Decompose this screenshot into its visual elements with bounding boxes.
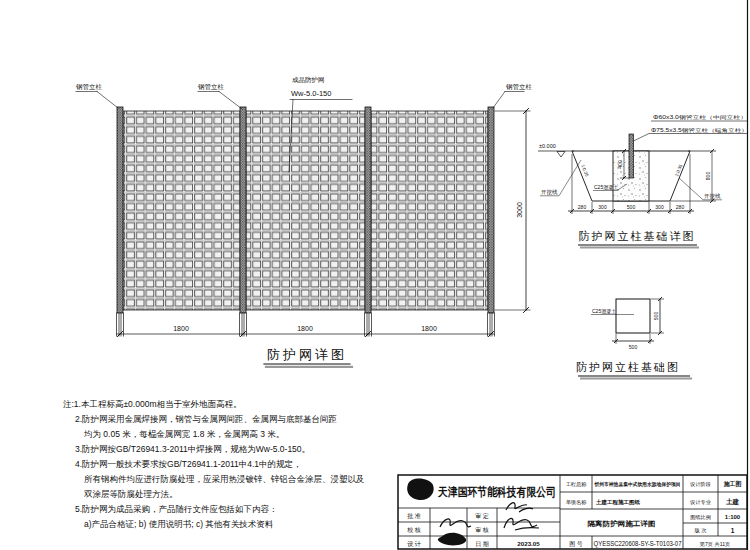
stage-value: 施工图	[723, 480, 742, 488]
note-line: a)产品合格证; b) 使用说明书; c) 其他有关技术资料	[63, 517, 393, 532]
label-review: 审 核	[475, 526, 489, 533]
dim-b2: 300	[598, 204, 607, 210]
foundation-detail-title: 防护网立柱基础详图	[579, 230, 696, 242]
dim-w: 500	[629, 344, 638, 350]
post-label-1: 钢管立柱	[75, 83, 103, 91]
dim-h: 500	[653, 312, 659, 321]
dim-embed: 400	[617, 160, 623, 169]
page-info: 第7页 共11页	[699, 541, 730, 547]
foundation-plan-drawing: C25混凝土 500 500 防护网立柱基础图	[576, 297, 692, 379]
concrete-label: C25混凝土	[594, 184, 618, 191]
label-scale: 图纸比例	[690, 514, 711, 521]
dim-b5: 280	[676, 204, 685, 210]
note-line: 均为 0.05 米，每榀金属网宽 1.8 米，金属网高 3 米。	[63, 427, 393, 442]
label-check: 校 核	[406, 527, 421, 533]
post-label-3: 钢管立柱	[505, 83, 533, 91]
spec-leader	[634, 134, 650, 142]
note-line: 5.防护网为成品采购，产品随行文件应包括如下内容：	[63, 502, 393, 517]
dim-panel-3: 1800	[421, 325, 437, 332]
concrete-label: C25混凝土	[592, 308, 616, 315]
note-line: 双涂层等防腐处理方法。	[63, 487, 393, 502]
notes-block: 注:1.本工程标高±0.000m相当于室外地面高程。 2.防护网采用金属焊接网，…	[63, 397, 393, 532]
dim-depth: 800	[705, 172, 711, 181]
label-project: 工程总称	[566, 481, 588, 487]
dim-height: 3000	[516, 202, 523, 218]
dim-b1: 280	[578, 204, 587, 210]
excavation-label-right: 开挖线	[704, 193, 721, 200]
label-revision: 版 次	[695, 527, 708, 533]
end-post-spec-label: Φ75.5x3.5钢管立柱（端角立柱）	[651, 127, 748, 134]
steel-post	[488, 107, 494, 313]
title-block: 天津国环节能科技有限公司 批 准 审 定 校 核 审 核 设 计 日 期 202…	[398, 475, 747, 549]
foundation-detail-drawing: ±0.000 400 800 1:0.35 1:0.35 C25混凝土	[538, 114, 748, 248]
mesh-panel	[371, 111, 488, 310]
company-logo-stamp	[407, 478, 434, 500]
fence-title: 防护网详图	[267, 347, 347, 362]
mid-post-spec-label: Φ60x3.0钢管立柱（中间立柱）	[653, 114, 747, 121]
dimension-lines	[117, 332, 494, 337]
project-name: 忻州市神池县集中式饮用水源地保护项目	[594, 481, 681, 488]
label-date: 日 期	[475, 541, 489, 548]
post-label-2: 钢管立柱	[197, 83, 225, 91]
dim-panel-2: 1800	[297, 325, 313, 332]
steel-post	[240, 107, 246, 313]
label-approve: 批 准	[407, 513, 421, 520]
mesh-spec-label: Ww-5.0-150	[291, 89, 331, 98]
drawing-number: QYESSC220608-SY-S-T0103-07	[594, 540, 682, 548]
label-design: 设 计	[407, 540, 421, 547]
mesh-product-label: 成品防护网	[292, 76, 325, 84]
level-label: ±0.000	[539, 143, 556, 149]
date-value: 2023.05	[517, 540, 540, 547]
dim-b4: 300	[655, 204, 664, 210]
label-discipline: 设计专业	[689, 499, 712, 505]
foundation-plan-square	[616, 299, 650, 333]
label-verify: 审 定	[475, 512, 489, 520]
mesh-panel	[246, 111, 365, 310]
note-line: 2.防护网采用金属焊接网，钢管与金属网间距、金属网与底部基台间距	[63, 412, 393, 427]
discipline-value: 土建	[726, 498, 740, 506]
note-line: 注:1.本工程标高±0.000m相当于室外地面高程。	[63, 397, 393, 412]
fence-elevation-drawing: 1800 1800 1800 3000 钢管立柱 钢管立柱 钢管立柱 成品防护网…	[75, 76, 533, 367]
company-name: 天津国环节能科技有限公司	[437, 485, 556, 499]
foundation-plan-title: 防护网立柱基础图	[576, 361, 680, 373]
height-dimension	[495, 109, 530, 313]
embedded-post	[629, 134, 634, 178]
steel-post	[117, 107, 123, 313]
label-stage: 设计阶段	[689, 481, 711, 487]
drawing-name: 隔离防护网施工详图	[588, 519, 656, 528]
excavation-label-left: 开挖线	[541, 189, 558, 196]
dim-b3: 500	[627, 204, 636, 210]
drawing-sheet: 1800 1800 1800 3000 钢管立柱 钢管立柱 钢管立柱 成品防护网…	[0, 0, 750, 550]
note-line: 3.防护网按GB/T26941.3-2011中焊接网，规格为Ww-5.0-150…	[63, 442, 393, 457]
label-item: 单项名称	[566, 499, 588, 506]
revision-value: 1	[731, 527, 735, 534]
note-line: 所有钢构件均应进行防腐处理，应采用热浸镀锌、锌铝合金涂层、浸塑以及	[63, 472, 393, 487]
steel-post	[365, 107, 371, 313]
item-name: 土建工程施工图纸	[595, 499, 641, 506]
label-drawing-no: 图 号	[569, 541, 583, 548]
scale-value: 1:100	[725, 514, 741, 520]
note-line: 4.防护网一般技术要求按GB/T26941.1-2011中4.1中的规定，	[63, 457, 393, 472]
mesh-panel	[123, 111, 240, 310]
dim-panel-1: 1800	[173, 325, 189, 332]
